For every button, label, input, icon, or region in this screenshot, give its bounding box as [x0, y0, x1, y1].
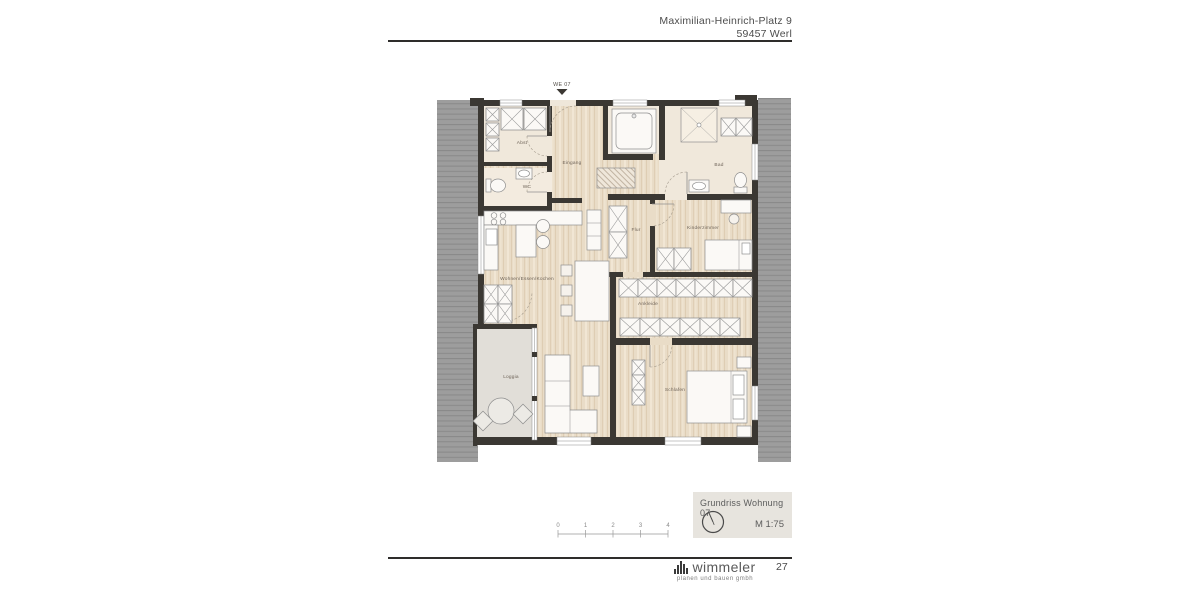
- roof-left: [437, 100, 478, 462]
- wc-toilet: [486, 179, 506, 192]
- unit-marker: WE 07: [553, 82, 571, 95]
- room-label-eingang: Eingang: [562, 160, 581, 166]
- roof-right: [758, 98, 791, 462]
- scale-tick-1: 1: [584, 523, 588, 529]
- room-label-wc: WC: [523, 184, 532, 190]
- bad-toilet: [734, 173, 747, 194]
- room-label-bad: Bad: [714, 162, 723, 168]
- dining-set: [561, 261, 609, 321]
- header-address: Maximilian-Heinrich-Platz 9 59457 Werl: [592, 15, 792, 41]
- room-label-kinderzimmer: Kinderzimmer: [687, 225, 719, 231]
- logo-subtext: planen und bauen gmbh: [677, 576, 753, 582]
- side-table: [583, 366, 599, 396]
- company-logo: wimmeler planen und bauen gmbh: [672, 560, 758, 582]
- room-label-ankleide: Ankleide: [638, 301, 658, 307]
- nightstand: [737, 357, 751, 368]
- bar-stool: [537, 236, 550, 249]
- scale-tick-3: 3: [639, 523, 643, 529]
- north-arrow-icon: [699, 507, 727, 535]
- shower: [681, 108, 717, 142]
- room-label-flur: Flur: [631, 227, 640, 233]
- room-label-loggia: Loggia: [503, 374, 519, 380]
- bar-stool: [537, 220, 550, 233]
- room-label-abst: Abst: [517, 140, 528, 146]
- unit-arrow-icon: [557, 89, 568, 95]
- address-line-1: Maximilian-Heinrich-Platz 9: [592, 15, 792, 28]
- mullion: [532, 352, 537, 357]
- logo-wordmark: wimmeler: [692, 560, 755, 574]
- wimmeler-bars-icon: [674, 560, 688, 574]
- bad-sink: [689, 180, 709, 192]
- mullion: [532, 396, 537, 401]
- plan-scale: M 1:75: [755, 519, 784, 530]
- floor-plan-drawing: WE 07: [437, 78, 791, 462]
- nightstand: [737, 426, 751, 437]
- wc-sink: [516, 168, 532, 179]
- room-label-wohnen: Wohnen/Essen/Kochen: [500, 276, 554, 282]
- scale-bar: 0 1 2 3 4: [553, 519, 673, 544]
- document-page: Maximilian-Heinrich-Platz 9 59457 Werl: [0, 0, 1200, 600]
- room-label-schlafen: Schlafen: [665, 387, 685, 393]
- header-rule: [388, 40, 792, 42]
- page-number: 27: [776, 561, 788, 573]
- unit-label: WE 07: [553, 82, 571, 88]
- scale-tick-2: 2: [611, 523, 615, 529]
- title-block: Grundriss Wohnung 07 M 1:75: [693, 492, 792, 538]
- floor-plan: WE 07: [437, 78, 791, 462]
- hall-drawers: [587, 210, 601, 250]
- scale-tick-0: 0: [556, 523, 560, 529]
- scale-tick-4: 4: [666, 523, 670, 529]
- hall-sideboard: [597, 168, 635, 188]
- bathtub: [612, 109, 656, 153]
- kids-bed: [705, 240, 752, 270]
